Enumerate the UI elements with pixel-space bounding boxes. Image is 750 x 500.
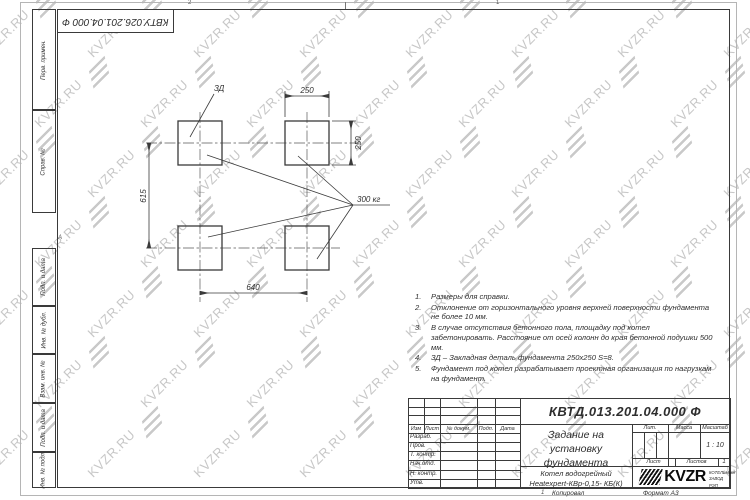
margin-box-inv-dubl: Инв. № дубл. bbox=[32, 306, 56, 354]
footer-zone: 1 bbox=[541, 490, 544, 496]
zone-marker-a: А bbox=[58, 235, 62, 241]
col-podp: Подп. bbox=[477, 424, 495, 433]
drawing-sheet: KVZR.RUKVZR.RUKVZR.RUKVZR.RUKVZR.RUKVZR.… bbox=[0, 0, 750, 500]
sheet-label: Лист bbox=[632, 458, 675, 466]
margin-box-perv-primen: Перв. примен. bbox=[32, 9, 56, 110]
scale-label: Масштаб bbox=[700, 424, 730, 432]
note-item: 5.Фундамент под котел разрабатывает прое… bbox=[415, 364, 715, 383]
col-data: Дата bbox=[495, 424, 520, 433]
top-stamp-number: КВТУ.026.201.04.000 Ф bbox=[62, 16, 169, 27]
col-izm: Изм bbox=[408, 424, 424, 433]
margin-box-sprav-no: Справ. № bbox=[32, 110, 56, 213]
margin-box-podp-data-1: Подп. и дата bbox=[32, 248, 56, 306]
row-utv: Утв. bbox=[410, 480, 424, 486]
kvzr-logo-subtext: КОТЕЛЬНЫЙ ЗАВОД РЭП bbox=[709, 470, 731, 489]
note-item: 2.Отклонение от горизонтального уровня в… bbox=[415, 303, 715, 322]
row-prov: Пров. bbox=[410, 443, 426, 449]
col-doc: № докум. bbox=[440, 424, 477, 433]
sheets-label: Листов bbox=[675, 458, 718, 466]
lit-label: Лит. bbox=[632, 424, 668, 432]
row-tkontr: Т. контр. bbox=[410, 452, 436, 458]
row-nachotd: Нач.отд. bbox=[410, 461, 435, 467]
margin-box-podp-data-2: Подп. и дата bbox=[32, 403, 56, 452]
margin-box-inv-podl: Инв. № подл. bbox=[32, 452, 56, 488]
mass-label: Масса bbox=[668, 424, 700, 432]
footer-format: Формат А3 bbox=[643, 490, 679, 497]
note-item: 4.ЗД – Закладная деталь фундамента 250х2… bbox=[415, 353, 715, 363]
drawing-title: Задание на установку фундамента bbox=[522, 428, 630, 471]
note-item: 1.Размеры для справки. bbox=[415, 292, 715, 302]
note-item: 3.В случае отсутствия бетонного пола, пл… bbox=[415, 323, 715, 352]
margin-box-vzam-inv: Взам. инв. № bbox=[32, 354, 56, 403]
kvzr-logo-text: KVZR bbox=[661, 466, 709, 488]
top-stamp-box: КВТУ.026.201.04.000 Ф bbox=[57, 9, 174, 33]
sheets-value: 1 bbox=[718, 458, 730, 466]
zone-marker-1: 1 bbox=[496, 0, 499, 6]
kvzr-logo-icon bbox=[638, 469, 662, 485]
scale-value: 1 : 10 bbox=[700, 432, 730, 458]
notes-list: 1.Размеры для справки. 2.Отклонение от г… bbox=[415, 292, 715, 384]
row-nkontr: Н. контр. bbox=[410, 471, 437, 477]
col-list: Лист bbox=[424, 424, 440, 433]
zone-marker-2: 2 bbox=[188, 0, 191, 6]
row-razrab: Разраб. bbox=[410, 434, 432, 440]
zone-divider bbox=[345, 2, 346, 9]
doc-number: КВТД.013.201.04.000 Ф bbox=[520, 398, 730, 424]
footer-copied: Копировал bbox=[552, 490, 584, 497]
product-name: Котел водогрейный Heatexpert-КВр-0,15- К… bbox=[522, 469, 630, 489]
